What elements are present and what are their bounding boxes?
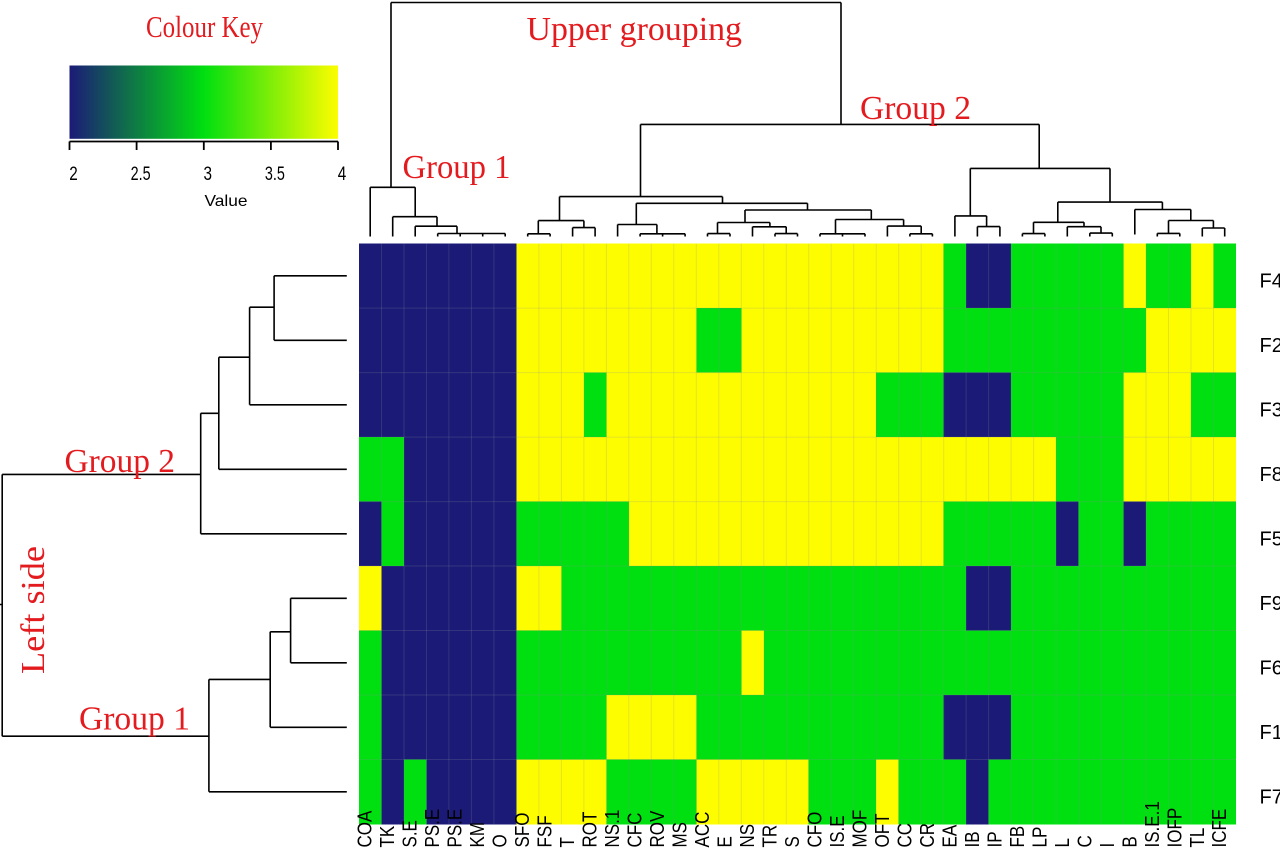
svg-text:CR: CR xyxy=(917,823,939,848)
svg-text:F5: F5 xyxy=(1260,528,1280,550)
svg-text:NS: NS xyxy=(737,824,759,848)
svg-text:ACC: ACC xyxy=(692,812,714,848)
svg-text:Group 2: Group 2 xyxy=(65,443,176,480)
svg-text:OFT: OFT xyxy=(872,814,894,848)
svg-text:2: 2 xyxy=(69,164,78,185)
svg-text:Group 2: Group 2 xyxy=(860,90,971,127)
svg-text:FB: FB xyxy=(1007,826,1029,848)
svg-text:4: 4 xyxy=(338,164,347,185)
svg-text:F1: F1 xyxy=(1260,722,1280,744)
svg-text:TL: TL xyxy=(1187,828,1209,848)
svg-text:PS.E: PS.E xyxy=(445,809,467,848)
svg-text:B: B xyxy=(1119,836,1141,847)
svg-text:C: C xyxy=(1074,835,1096,847)
svg-text:COA: COA xyxy=(355,810,377,847)
svg-text:MS: MS xyxy=(670,822,692,848)
svg-text:CC: CC xyxy=(894,823,916,848)
svg-text:CFC: CFC xyxy=(625,813,647,848)
svg-text:F4: F4 xyxy=(1260,270,1280,292)
svg-text:SFO: SFO xyxy=(512,813,534,848)
svg-text:IP: IP xyxy=(984,831,1006,847)
svg-text:E: E xyxy=(715,836,737,847)
svg-text:L: L xyxy=(1052,838,1074,848)
svg-text:PS.E: PS.E xyxy=(422,809,444,848)
svg-text:ICFE: ICFE xyxy=(1209,809,1231,848)
svg-text:IB: IB xyxy=(962,831,984,847)
svg-text:TR: TR xyxy=(760,825,782,848)
svg-text:TK: TK xyxy=(377,825,399,847)
svg-text:F7: F7 xyxy=(1260,786,1280,808)
svg-text:ROV: ROV xyxy=(647,810,669,847)
svg-text:Left side: Left side xyxy=(15,546,52,674)
svg-text:F2: F2 xyxy=(1260,335,1280,357)
svg-text:IOFP: IOFP xyxy=(1164,808,1186,848)
svg-text:F8: F8 xyxy=(1260,464,1280,486)
svg-text:Colour Key: Colour Key xyxy=(146,9,263,44)
svg-text:CFO: CFO xyxy=(805,812,827,848)
svg-text:F3: F3 xyxy=(1260,399,1280,421)
svg-text:Group 1: Group 1 xyxy=(79,701,190,738)
svg-text:Upper grouping: Upper grouping xyxy=(527,11,743,48)
svg-text:O: O xyxy=(490,834,512,847)
svg-text:3.5: 3.5 xyxy=(265,164,285,185)
svg-text:T: T xyxy=(557,837,579,847)
svg-text:IS.E: IS.E xyxy=(827,815,849,847)
svg-text:S.E: S.E xyxy=(400,820,422,847)
svg-text:FSF: FSF xyxy=(535,815,557,847)
svg-text:EA: EA xyxy=(939,824,961,847)
svg-text:2.5: 2.5 xyxy=(131,164,151,185)
svg-text:NS.1: NS.1 xyxy=(602,810,624,848)
svg-text:LP: LP xyxy=(1029,827,1051,848)
svg-text:Value: Value xyxy=(205,193,248,210)
svg-text:F9: F9 xyxy=(1260,593,1280,615)
svg-text:KM: KM xyxy=(467,822,489,848)
svg-text:S: S xyxy=(782,836,804,847)
svg-text:I: I xyxy=(1097,843,1119,848)
svg-text:Group 1: Group 1 xyxy=(403,149,511,186)
svg-text:3: 3 xyxy=(204,164,213,185)
svg-text:IS.E.1: IS.E.1 xyxy=(1142,801,1164,847)
svg-text:F6: F6 xyxy=(1260,657,1280,679)
svg-text:ROT: ROT xyxy=(580,812,602,848)
svg-text:MOF: MOF xyxy=(850,810,872,848)
